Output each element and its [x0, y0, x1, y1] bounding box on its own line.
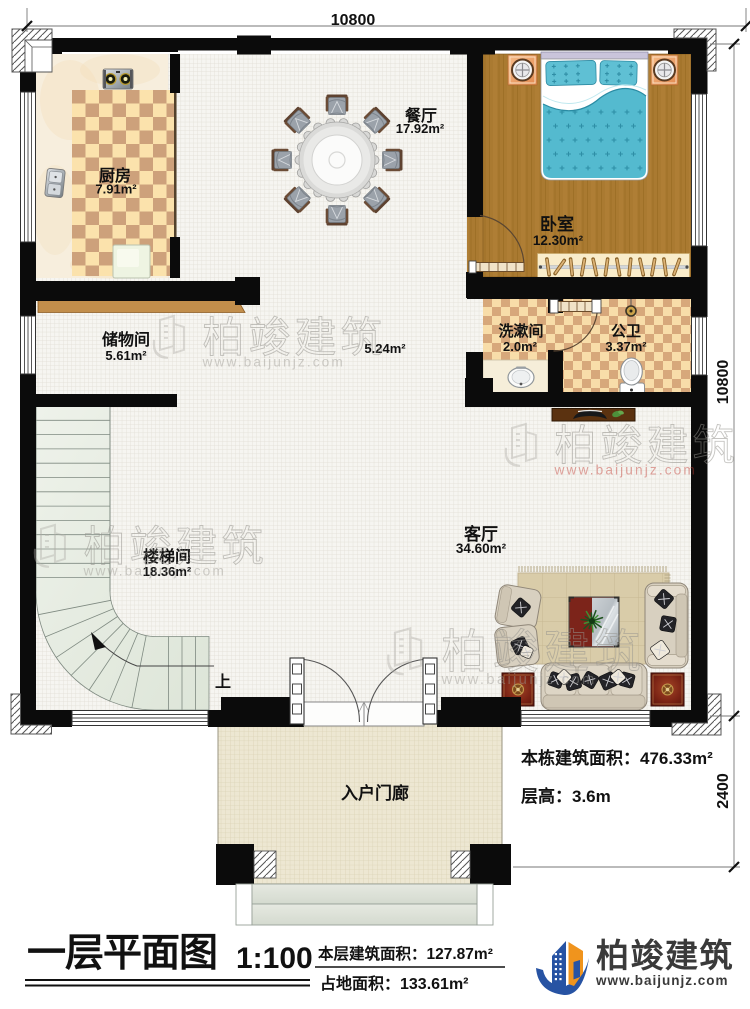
svg-text:12.30m²: 12.30m² — [533, 233, 584, 248]
svg-text:3.37m²: 3.37m² — [605, 339, 647, 354]
svg-text:本层建筑面积：127.87m²: 本层建筑面积：127.87m² — [318, 944, 493, 963]
svg-text:7.91m²: 7.91m² — [95, 182, 137, 197]
svg-text:层高：3.6m: 层高：3.6m — [521, 786, 611, 806]
svg-text:一层平面图: 一层平面图 — [27, 932, 217, 975]
svg-text:www.baijunjz.com: www.baijunjz.com — [554, 463, 697, 478]
svg-text:本栋建筑面积：476.33m²: 本栋建筑面积：476.33m² — [521, 748, 713, 768]
svg-text:5.61m²: 5.61m² — [105, 348, 147, 363]
svg-text:10800: 10800 — [331, 12, 376, 29]
svg-text:www.baijunjz.com: www.baijunjz.com — [441, 672, 597, 688]
svg-text:2400: 2400 — [715, 773, 732, 809]
svg-text:占地面积：133.61m²: 占地面积：133.61m² — [320, 974, 469, 993]
svg-text:www.baijunjz.com: www.baijunjz.com — [595, 973, 729, 988]
svg-text:10800: 10800 — [715, 360, 732, 405]
svg-text:上: 上 — [215, 673, 231, 691]
svg-text:储物间: 储物间 — [101, 330, 150, 349]
svg-text:柏竣建筑: 柏竣建筑 — [442, 626, 646, 678]
svg-text:www.baijunjz.com: www.baijunjz.com — [202, 355, 345, 370]
svg-text:柏竣建筑: 柏竣建筑 — [596, 937, 734, 974]
svg-text:1:100: 1:100 — [236, 942, 313, 975]
svg-text:2.0m²: 2.0m² — [503, 339, 538, 354]
svg-text:34.60m²: 34.60m² — [456, 541, 507, 556]
svg-text:入户门廊: 入户门廊 — [341, 783, 409, 803]
svg-text:17.92m²: 17.92m² — [396, 121, 445, 136]
svg-text:www.baijunjz.com: www.baijunjz.com — [83, 564, 226, 579]
svg-text:洗漱间: 洗漱间 — [498, 322, 543, 340]
svg-text:公卫: 公卫 — [611, 323, 641, 340]
svg-text:卧室: 卧室 — [540, 214, 574, 234]
